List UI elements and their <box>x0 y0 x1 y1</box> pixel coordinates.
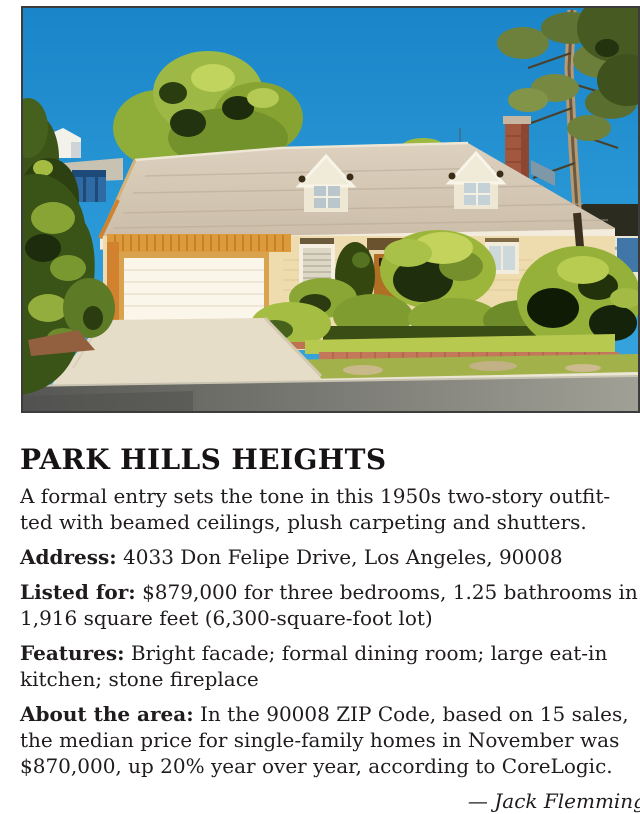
detail-about-area: About the area: In the 90008 ZIP Code, b… <box>20 701 640 779</box>
detail-features: Features: Bright facade; formal dining r… <box>20 640 640 692</box>
listing-photo <box>21 6 640 413</box>
detail-text: kitchen; stone fireplace <box>20 666 640 692</box>
intro-line: ted with beamed ceilings, plush carpetin… <box>20 509 640 535</box>
detail-label: Listed for: <box>20 580 136 604</box>
detail-text: Bright facade; formal dining room; large… <box>131 641 608 665</box>
detail-text: the median price for single-family homes… <box>20 727 640 753</box>
detail-listed-for: Listed for: $879,000 for three bedrooms,… <box>20 579 640 631</box>
detail-label: About the area: <box>20 702 194 726</box>
garage-door <box>119 252 269 322</box>
house-photo-illustration <box>23 8 638 411</box>
detail-label: Address: <box>20 545 117 569</box>
detail-text: In the 90008 ZIP Code, based on 15 sales… <box>200 702 629 726</box>
byline: — Jack Flemming <box>20 788 640 814</box>
article-text: PARK HILLS HEIGHTS A formal entry sets t… <box>20 444 640 814</box>
detail-text: $879,000 for three bedrooms, 1.25 bathro… <box>142 580 638 604</box>
intro-paragraph: A formal entry sets the tone in this 195… <box>20 483 640 535</box>
detail-address: Address: 4033 Don Felipe Drive, Los Ange… <box>20 544 640 570</box>
intro-line: A formal entry sets the tone in this 195… <box>20 483 640 509</box>
detail-text: $870,000, up 20% year over year, accordi… <box>20 753 640 779</box>
detail-text: 4033 Don Felipe Drive, Los Angeles, 9000… <box>123 545 563 569</box>
detail-label: Features: <box>20 641 124 665</box>
headline: PARK HILLS HEIGHTS <box>20 444 640 475</box>
detail-text: 1,916 square feet (6,300-square-foot lot… <box>20 605 640 631</box>
